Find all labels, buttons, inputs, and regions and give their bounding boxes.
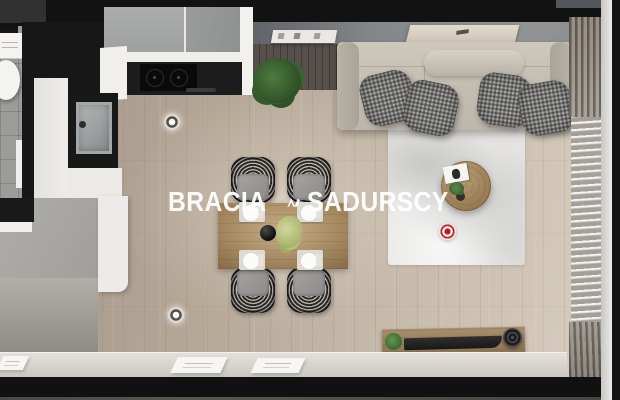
ceiling-spotlight (164, 114, 180, 130)
watermark-text-left: BRACIA (168, 186, 266, 218)
hotspot-marker-icon[interactable] (439, 223, 456, 240)
burner-ring (170, 69, 188, 87)
upper-cabinet-left (104, 7, 186, 52)
sill-book (251, 358, 306, 373)
induction-cooktop (140, 64, 197, 91)
burner-ring (146, 69, 164, 87)
wall-shelf (271, 30, 337, 43)
top-right-wall-corner (556, 0, 604, 8)
window-frame-strip (601, 0, 612, 400)
potted-plant-large (253, 58, 301, 104)
right-wall-edge (612, 0, 620, 400)
black-bowl (260, 225, 276, 241)
white-baseboard (0, 222, 32, 232)
place-setting (239, 250, 265, 270)
sill-book (170, 357, 227, 373)
white-cabinet-column (34, 78, 68, 208)
plate (242, 252, 260, 270)
watermark-text-right: SADURSCY (307, 186, 449, 218)
wardrobe-white-column (98, 196, 128, 292)
top-left-wall-corner (0, 0, 46, 23)
cutlery (261, 254, 263, 266)
cabinet-handle (186, 88, 216, 92)
dining-chair (231, 267, 275, 313)
watermark: BRACIA SADURSCY (168, 187, 468, 217)
mountain-peaks-logo-icon (287, 189, 300, 215)
ceiling-spotlight (168, 307, 184, 323)
door-frame-strip (16, 140, 22, 188)
kitchen-sink (76, 102, 112, 154)
cutlery (319, 254, 321, 266)
chair-cushion (237, 270, 269, 296)
chair-cushion (293, 270, 325, 296)
wall-niche (0, 198, 34, 222)
curtain-drape-bottom (569, 322, 603, 377)
upper-cabinet-right (186, 7, 241, 52)
wall-art-frame (406, 25, 519, 43)
bottom-wall (0, 377, 620, 397)
bench-plant (385, 333, 402, 350)
sofa-arm-left (337, 42, 359, 130)
curtain-drape-top (569, 17, 603, 117)
round-speaker (503, 328, 522, 347)
plate (300, 252, 318, 270)
faucet (79, 121, 86, 128)
bolster-cushion (424, 50, 524, 76)
dining-chair (287, 267, 331, 313)
throw-pillow (516, 78, 576, 138)
wardrobe-front (0, 278, 98, 354)
apartment-top-view: BRACIA SADURSCY (0, 0, 620, 400)
place-setting (297, 250, 323, 270)
tv-panel (404, 336, 502, 351)
bathroom-radiator (0, 33, 22, 59)
